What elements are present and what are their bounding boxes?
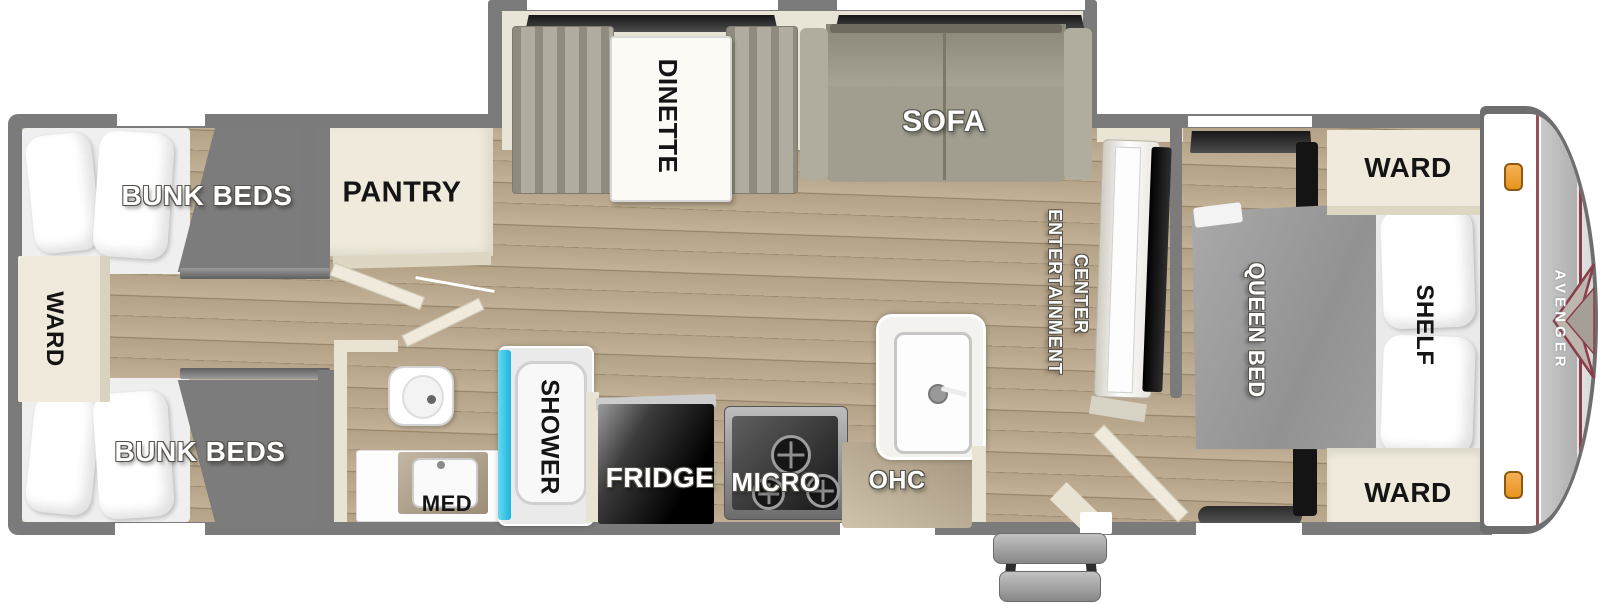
bed-frame-post-bottom: [1293, 446, 1317, 516]
bed-frame-post-top: [1296, 142, 1318, 214]
bunk-bottom-edge: [180, 368, 330, 379]
front-ward-top-label: WARD: [1364, 154, 1452, 182]
entertainment-label-line2: CENTER: [1072, 254, 1090, 334]
avenger-logo-label: AVENGER: [1553, 269, 1568, 370]
slideout-window-left: [527, 0, 778, 10]
entry-door-sill: [1080, 512, 1112, 534]
wall-counter-door: [972, 446, 986, 522]
bunk-top-pillow-1: [24, 131, 102, 255]
marker-light-top: [1504, 163, 1523, 191]
cap-pinstripe-left: [1536, 114, 1539, 526]
wall-bunk-pantry: [302, 128, 318, 268]
shower-label: SHOWER: [537, 379, 562, 495]
bath-wall-left: [334, 342, 347, 522]
bunk-bottom-pillow-1: [24, 393, 102, 517]
ohc-label: OHC: [868, 469, 925, 494]
queen-bed-label: QUEEN BED: [1245, 262, 1267, 397]
dinette-bench-right: [726, 26, 798, 194]
sofa-arm-left: [800, 28, 828, 180]
entertainment-label-line1: ENTERTAINMENT: [1046, 209, 1064, 375]
toilet-seat: [402, 375, 444, 419]
pantry-label: PANTRY: [343, 179, 462, 208]
bunk-bottom-label: BUNK BEDS: [115, 438, 286, 466]
sofa-top-edge: [830, 24, 1062, 33]
window-top-front: [1188, 116, 1312, 127]
fridge-label: FRIDGE: [606, 464, 715, 492]
window-bottom-rear: [115, 523, 205, 535]
sofa-arm-right: [1064, 28, 1092, 180]
toilet-flush-button: [427, 395, 436, 404]
front-ward-bottom-label: WARD: [1364, 479, 1452, 507]
rv-floorplan: WARD BUNK BEDS BUNK BEDS PANTRY DINETTE …: [0, 0, 1600, 604]
entertainment-cabinet-panel: [1107, 147, 1142, 394]
dinette-label: DINETTE: [655, 59, 681, 174]
med-label: MED: [422, 493, 472, 515]
dinette-bench-left: [512, 26, 614, 194]
bath-wall-top: [334, 340, 398, 352]
wall-bunk-bath: [318, 370, 334, 522]
sofa-back: [826, 24, 1066, 88]
entry-step-2: [999, 571, 1101, 602]
bedroom-divider-wall: [1170, 128, 1182, 398]
marker-light-bottom: [1504, 471, 1523, 499]
rear-ward-label: WARD: [42, 291, 66, 366]
window-bottom-bedroom: [1196, 523, 1302, 535]
bunk-top-edge: [180, 268, 330, 279]
entry-step-1: [993, 533, 1107, 564]
shelf-label: SHELF: [1412, 284, 1436, 365]
med-sink-faucet: [437, 461, 445, 469]
slideout-window-right: [837, 0, 1085, 10]
sofa-label: SOFA: [902, 107, 986, 137]
queen-bed-blanket: [1188, 203, 1394, 456]
shower-glass-accent: [498, 350, 511, 520]
bedroom-window-valance: [1190, 131, 1312, 153]
bunk-top-label: BUNK BEDS: [122, 182, 293, 210]
window-top-rear: [117, 114, 205, 126]
micro-label: MICRO: [731, 469, 820, 495]
